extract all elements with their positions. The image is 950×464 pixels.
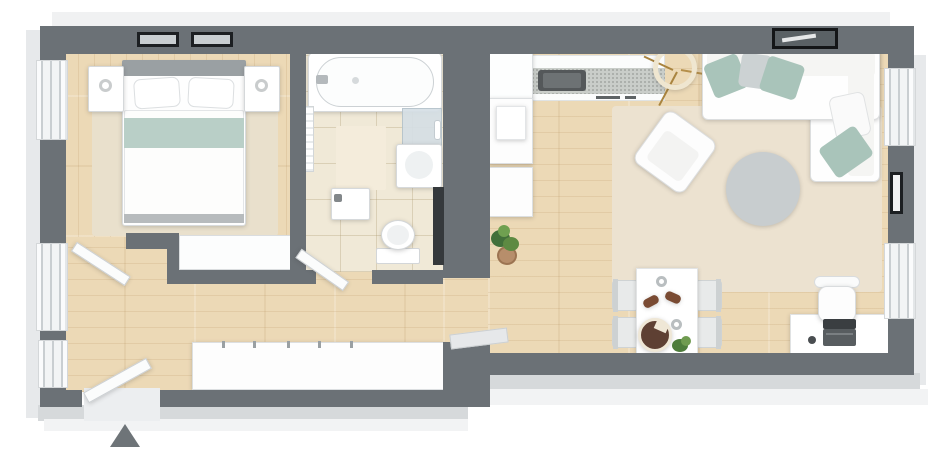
utility-shaft <box>433 187 444 265</box>
kitchen-sink-basin <box>543 73 581 88</box>
bath-mat <box>336 126 386 190</box>
picture-frame-bedroom-1 <box>137 32 179 47</box>
shower-handle <box>434 120 441 140</box>
wall-bathroom-south-b <box>372 270 443 284</box>
dining-chair-3-back <box>716 279 721 312</box>
wall-bottom-hall-left <box>40 390 82 407</box>
wall-bottom-hall-right <box>160 390 468 407</box>
window-living-right-top <box>884 68 916 146</box>
ottoman <box>726 152 800 226</box>
floor-plan <box>0 0 950 464</box>
washing-machine <box>331 188 370 220</box>
wall-bottom-living <box>488 353 914 375</box>
laptop-screen <box>823 319 856 329</box>
bed-pillow-right <box>187 77 235 109</box>
washbasin-bowl <box>405 151 433 179</box>
window-hallway-left-low <box>38 340 68 388</box>
nightstand-right-lamp <box>255 79 268 92</box>
kitchen-cart-box <box>496 106 526 140</box>
wall-step <box>443 342 490 407</box>
bed-duvet-accent-band <box>124 118 244 148</box>
laptop-keys-line <box>826 333 853 335</box>
kitchen-oven-display <box>625 96 636 99</box>
entrance-arrow <box>110 424 140 447</box>
plant-foliage-3 <box>498 225 510 237</box>
nightstand-left-lamp <box>99 79 112 92</box>
wall-bathroom-south-a <box>306 270 316 284</box>
table-plant-leaf <box>681 336 691 346</box>
desk-mouse <box>808 336 816 344</box>
bed-foot-band <box>124 214 244 223</box>
outer-bottom-white-living <box>476 389 928 405</box>
dining-chair-1-back <box>613 279 618 312</box>
plant-foliage-2 <box>503 237 519 251</box>
bedroom-wardrobe <box>179 235 297 270</box>
closet-handle-1 <box>222 341 225 348</box>
washing-machine-knob <box>334 194 342 202</box>
bed-headboard <box>122 60 246 76</box>
closet-handle-3 <box>287 341 290 348</box>
dining-chair-4-back <box>716 316 721 349</box>
closet-handle-2 <box>253 341 256 348</box>
closet-handle-5 <box>350 341 353 348</box>
bathtub-faucet <box>316 75 328 84</box>
desk-chair-seat <box>818 286 856 322</box>
window-hallway-left <box>36 243 68 331</box>
toilet-tank <box>376 248 420 264</box>
table-cup-2 <box>671 319 682 330</box>
bed-pillow-left <box>133 76 181 109</box>
laptop-keyboard <box>823 329 856 346</box>
wall-bedroom-jog <box>167 233 179 284</box>
kitchen-oven-handle <box>596 96 620 99</box>
picture-frame-right-wall <box>890 172 903 214</box>
window-living-right-mid <box>884 243 916 319</box>
kitchen-cabinet-low <box>489 167 533 217</box>
wall-bathroom-living <box>443 26 490 278</box>
toilet-seat <box>387 225 409 245</box>
window-bedroom-left <box>36 60 68 140</box>
picture-frame-bedroom-2 <box>191 32 233 47</box>
wall-bedroom-bathroom <box>290 26 306 284</box>
closet-handle-4 <box>318 341 321 348</box>
table-cup-1 <box>656 276 667 287</box>
bathtub-basin <box>316 57 434 107</box>
bathtub-drain <box>352 77 359 84</box>
wall-bedroom-south-b <box>179 270 306 284</box>
dining-chair-2-back <box>613 316 618 349</box>
hallway-closet <box>192 342 444 390</box>
